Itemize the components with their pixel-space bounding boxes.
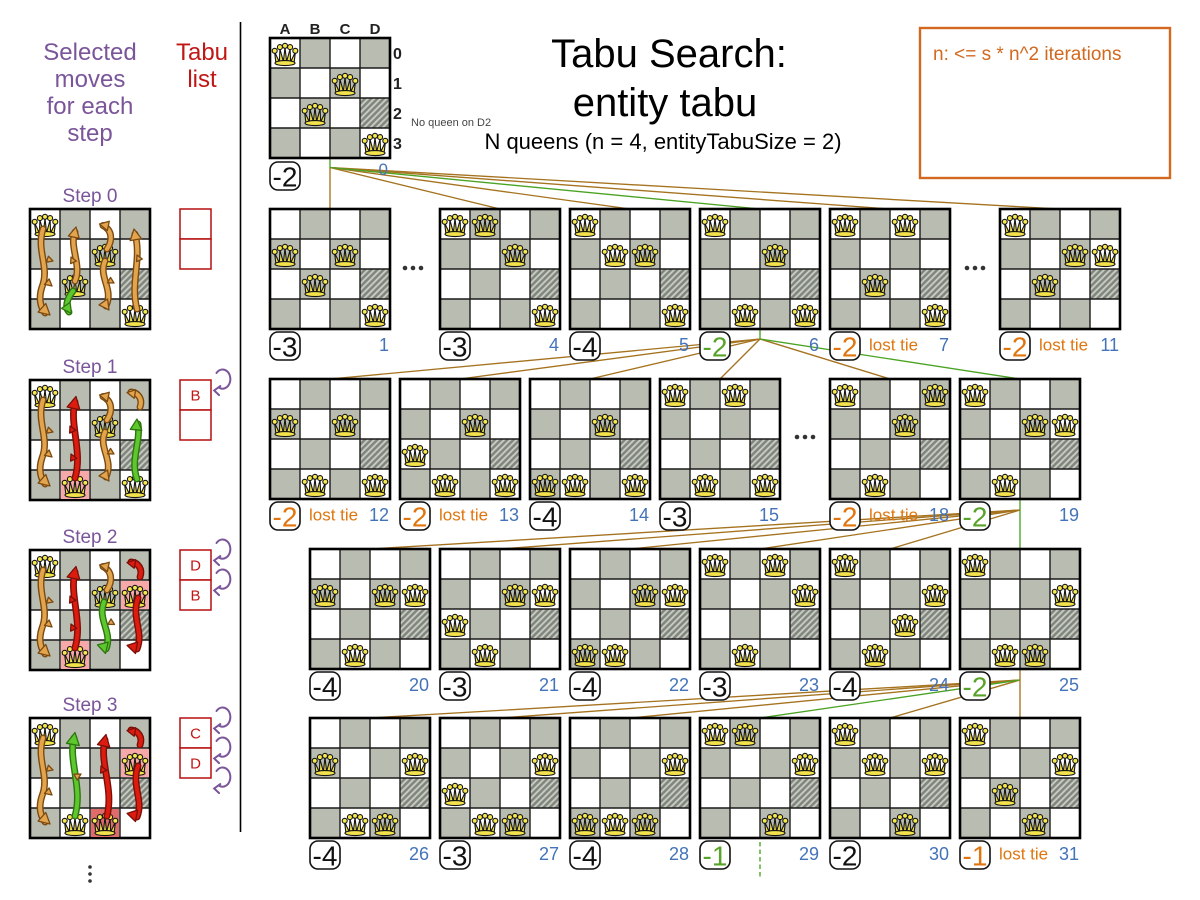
svg-text:20: 20 <box>409 675 429 695</box>
svg-text:-2: -2 <box>833 502 858 533</box>
svg-text:D: D <box>190 558 201 575</box>
svg-text:29: 29 <box>799 844 819 864</box>
svg-text:N queens (n = 4, entityTabuSiz: N queens (n = 4, entityTabuSize = 2) <box>484 129 841 154</box>
svg-text:4: 4 <box>549 335 559 355</box>
svg-text:lost tie: lost tie <box>1039 336 1088 355</box>
svg-text:1: 1 <box>379 335 389 355</box>
svg-text:12: 12 <box>369 505 389 525</box>
svg-text:22: 22 <box>669 675 689 695</box>
svg-text:24: 24 <box>929 675 949 695</box>
svg-text:C: C <box>190 726 201 743</box>
svg-text:B: B <box>190 588 200 605</box>
svg-text:No queen on D2: No queen on D2 <box>411 117 491 129</box>
svg-text:Step 2: Step 2 <box>63 527 118 548</box>
svg-text:14: 14 <box>629 505 649 525</box>
svg-text:28: 28 <box>669 844 689 864</box>
svg-text:5: 5 <box>679 335 689 355</box>
svg-text:21: 21 <box>539 675 559 695</box>
svg-text:2: 2 <box>393 106 402 123</box>
svg-text:-2: -2 <box>833 841 858 872</box>
svg-text:25: 25 <box>1059 675 1079 695</box>
svg-text:27: 27 <box>539 844 559 864</box>
svg-text:-4: -4 <box>313 841 338 872</box>
svg-text:Step 3: Step 3 <box>63 695 118 716</box>
svg-text:13: 13 <box>499 505 519 525</box>
svg-text:-4: -4 <box>533 502 558 533</box>
svg-text:-1: -1 <box>963 841 988 872</box>
svg-text:30: 30 <box>929 844 949 864</box>
svg-text:-1: -1 <box>703 841 728 872</box>
svg-text:Selectedmovesfor eachstep: Selectedmovesfor eachstep <box>43 39 136 147</box>
svg-text:-2: -2 <box>403 502 428 533</box>
svg-text:Step 1: Step 1 <box>63 357 118 378</box>
svg-text:lost tie: lost tie <box>869 506 918 525</box>
svg-text:D: D <box>370 21 381 38</box>
svg-text:-2: -2 <box>833 332 858 363</box>
svg-text:6: 6 <box>809 335 819 355</box>
svg-text:0: 0 <box>393 46 402 63</box>
svg-text:7: 7 <box>939 335 949 355</box>
svg-text:-3: -3 <box>443 332 468 363</box>
svg-text:-2: -2 <box>703 332 728 363</box>
svg-text:-4: -4 <box>573 332 598 363</box>
svg-text:lost tie: lost tie <box>439 506 488 525</box>
svg-text:-3: -3 <box>443 841 468 872</box>
svg-text:D: D <box>190 756 201 773</box>
svg-text:-2: -2 <box>273 162 298 193</box>
svg-text:3: 3 <box>393 136 402 153</box>
svg-text:B: B <box>190 388 200 405</box>
svg-text:-2: -2 <box>963 502 988 533</box>
svg-text:-4: -4 <box>573 841 598 872</box>
svg-text:C: C <box>340 21 351 38</box>
svg-text:-4: -4 <box>833 672 858 703</box>
svg-text:11: 11 <box>1100 335 1119 355</box>
svg-text:-2: -2 <box>963 672 988 703</box>
svg-text:Tabulist: Tabulist <box>176 39 228 93</box>
svg-text:26: 26 <box>409 844 429 864</box>
svg-text:23: 23 <box>799 675 819 695</box>
svg-text:n: <= s * n^2 iterations: n: <= s * n^2 iterations <box>933 44 1121 65</box>
svg-text:1: 1 <box>393 76 402 93</box>
svg-text:-4: -4 <box>573 672 598 703</box>
svg-text:B: B <box>310 21 321 38</box>
svg-text:Step 0: Step 0 <box>63 186 118 207</box>
svg-text:-2: -2 <box>273 502 298 533</box>
svg-text:15: 15 <box>759 505 779 525</box>
svg-text:0: 0 <box>379 160 388 179</box>
svg-text:31: 31 <box>1059 844 1079 864</box>
svg-text:Tabu Search:entity tabu: Tabu Search:entity tabu <box>551 32 787 125</box>
svg-text:-3: -3 <box>663 502 688 533</box>
svg-text:lost tie: lost tie <box>999 845 1048 864</box>
svg-text:A: A <box>280 21 291 38</box>
svg-text:lost tie: lost tie <box>309 506 358 525</box>
svg-text:-3: -3 <box>703 672 728 703</box>
svg-text:19: 19 <box>1059 505 1079 525</box>
svg-text:-3: -3 <box>273 332 298 363</box>
svg-text:-2: -2 <box>1003 332 1028 363</box>
svg-text:lost tie: lost tie <box>869 336 918 355</box>
svg-text:-3: -3 <box>443 672 468 703</box>
svg-text:18: 18 <box>929 505 949 525</box>
svg-text:-4: -4 <box>313 672 338 703</box>
